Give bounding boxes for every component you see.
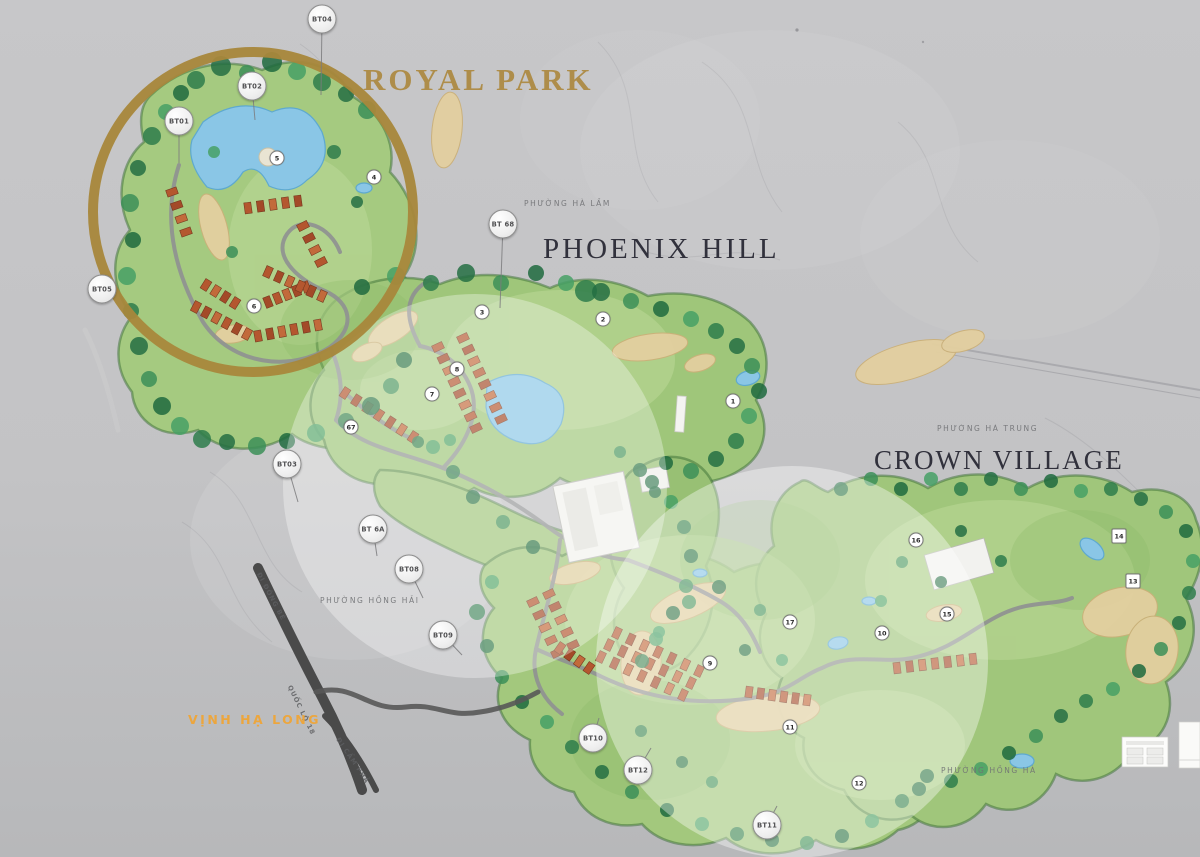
hole-marker: 4	[367, 170, 382, 185]
bt-marker: BT02	[238, 72, 267, 101]
hole-marker: 6	[247, 299, 262, 314]
district-label: PHƯỜNG HỒNG HẢI	[320, 596, 420, 605]
hole-marker: 12	[852, 776, 867, 791]
hole-marker: 67	[344, 420, 359, 435]
bt-marker: BT 6A	[359, 515, 388, 544]
hole-marker: 8	[450, 362, 465, 377]
hole-marker: 17	[783, 615, 798, 630]
hole-marker: 14	[1112, 529, 1127, 544]
bt-marker: BT01	[165, 107, 194, 136]
bt-marker: BT05	[88, 275, 117, 304]
hole-marker: 13	[1126, 574, 1141, 589]
sea-label: VỊNH HẠ LONG	[188, 712, 321, 727]
hole-marker: 11	[783, 720, 798, 735]
zone-label-phoenix-hill: PHOENIX HILL	[543, 233, 780, 266]
hole-marker: 3	[475, 305, 490, 320]
district-label: PHƯỜNG HỒNG HÀ	[941, 766, 1037, 775]
labels-and-markers: ROYAL PARK PHOENIX HILL CROWN VILLAGE PH…	[0, 0, 1200, 857]
road-label: ĐI CẨM PHẢ	[334, 736, 371, 785]
bt-marker: BT10	[579, 724, 608, 753]
hole-marker: 7	[425, 387, 440, 402]
district-label: PHƯỜNG HÀ TRUNG	[937, 424, 1038, 433]
district-label: PHƯỜNG HÀ LẦM	[524, 199, 611, 208]
bt-marker: BT09	[429, 621, 458, 650]
bt-marker: BT12	[624, 756, 653, 785]
hole-marker: 2	[596, 312, 611, 327]
bt-marker: BT04	[308, 5, 337, 34]
hole-marker: 16	[909, 533, 924, 548]
hole-marker: 5	[270, 151, 285, 166]
hole-marker: 15	[940, 607, 955, 622]
bt-marker: BT 68	[489, 210, 518, 239]
masterplan-map: ROYAL PARK PHOENIX HILL CROWN VILLAGE PH…	[0, 0, 1200, 857]
road-label: ĐI ĐÔNG BỀ	[255, 571, 287, 622]
road-label: QUỐC LỘ 18	[286, 684, 317, 736]
bt-marker: BT03	[273, 450, 302, 479]
zone-label-crown-village: CROWN VILLAGE	[874, 445, 1124, 476]
bt-marker: BT11	[753, 811, 782, 840]
hole-marker: 10	[875, 626, 890, 641]
bt-marker: BT08	[395, 555, 424, 584]
zone-label-royal-park: ROYAL PARK	[363, 62, 594, 98]
hole-marker: 1	[726, 394, 741, 409]
hole-marker: 9	[703, 656, 718, 671]
